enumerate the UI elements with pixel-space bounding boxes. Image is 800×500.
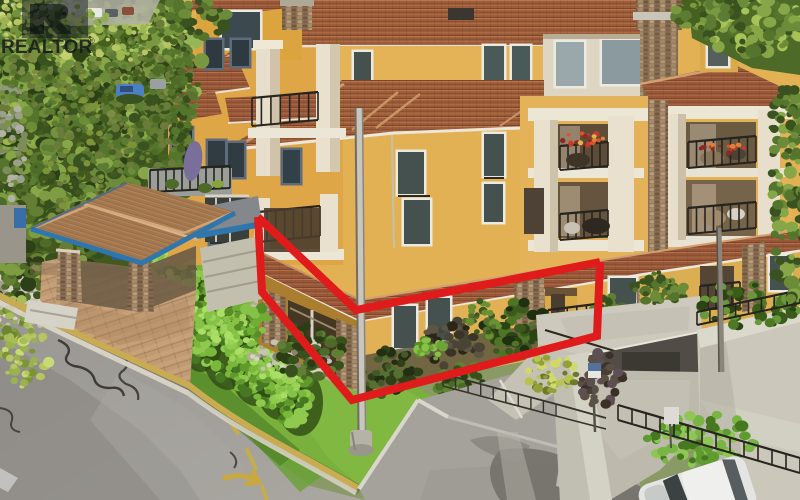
svg-text:®: ® xyxy=(88,36,95,46)
svg-text:REALTOR: REALTOR xyxy=(1,37,93,58)
